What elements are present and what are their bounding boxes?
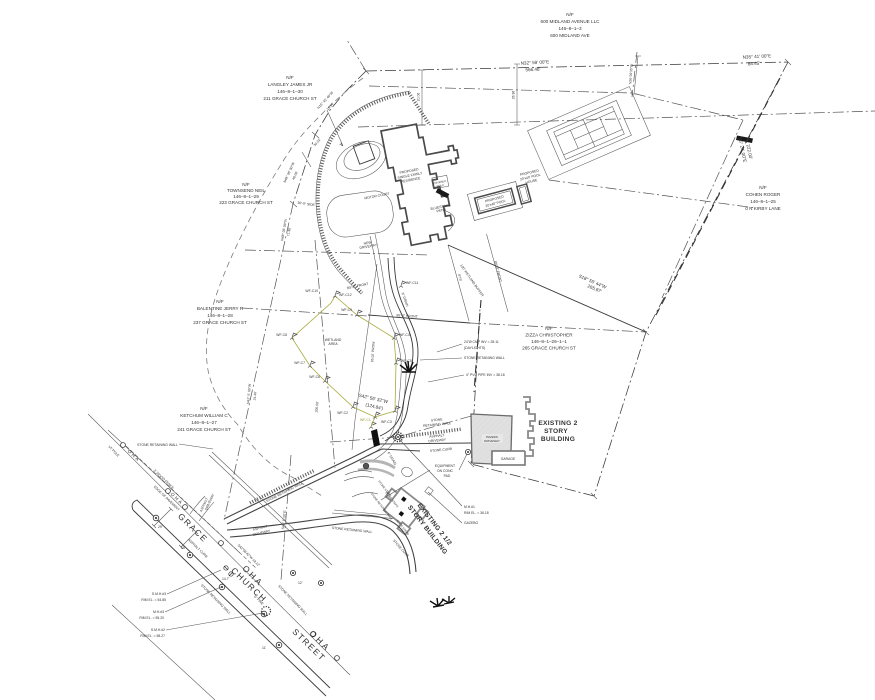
svg-text:24.40': 24.40' [253, 391, 258, 401]
svg-text:WF-C2: WF-C2 [337, 411, 348, 415]
svg-text:ON CONC: ON CONC [437, 469, 454, 473]
svg-text:WF-C3: WF-C3 [381, 420, 392, 424]
svg-text:EXISTING 2: EXISTING 2 [538, 420, 577, 427]
svg-text:DRIVEWAY: DRIVEWAY [359, 243, 378, 250]
svg-text:S42° 56' 32"W: S42° 56' 32"W [358, 393, 389, 405]
svg-text:29': 29' [158, 525, 163, 529]
svg-text:RETAINING WALL: RETAINING WALL [423, 421, 452, 428]
svg-text:241 GRACE CHURCH ST: 241 GRACE CHURCH ST [177, 427, 231, 432]
svg-text:N/F: N/F [286, 75, 294, 80]
svg-text:RIM EL. = 54.85: RIM EL. = 54.85 [141, 598, 166, 602]
svg-text:RIM EL. = 36.18: RIM EL. = 36.18 [464, 511, 489, 515]
svg-text:15': 15' [181, 546, 186, 550]
svg-text:PAD: PAD [444, 474, 451, 478]
svg-text:N35° 41' 00"E: N35° 41' 00"E [743, 53, 772, 59]
svg-text:STONE RETAINING WALL: STONE RETAINING WALL [265, 481, 303, 503]
svg-text:WF-C12: WF-C12 [339, 293, 352, 297]
svg-text:N/F: N/F [545, 326, 553, 331]
svg-text:(124.84'): (124.84') [365, 402, 384, 411]
svg-text:205.50': 205.50' [315, 401, 320, 413]
svg-text:STONE RETAINING WALL: STONE RETAINING WALL [332, 526, 373, 534]
svg-text:237 GRACE CHURCH ST: 237 GRACE CHURCH ST [193, 320, 247, 325]
svg-text:N/F: N/F [216, 299, 224, 304]
svg-text:26.96: 26.96 [512, 91, 516, 100]
svg-text:S.M.H.#2: S.M.H.#2 [151, 628, 165, 632]
svg-text:VT POLE: VT POLE [107, 445, 120, 458]
svg-text:14.7': 14.7' [222, 577, 230, 581]
svg-text:COHEN ROGER: COHEN ROGER [746, 192, 781, 197]
svg-text:M.H.#1: M.H.#1 [464, 505, 475, 509]
svg-text:265 GRACE CHURCH ST: 265 GRACE CHURCH ST [522, 346, 576, 351]
svg-text:LANGLEY JAMES JR: LANGLEY JAMES JR [268, 82, 313, 87]
svg-text:STONE RETAINING WALL: STONE RETAINING WALL [200, 583, 232, 615]
svg-text:STONE RETAINING WALL: STONE RETAINING WALL [464, 356, 505, 360]
svg-text:S.M.H.#3: S.M.H.#3 [152, 592, 166, 596]
svg-text:DRIVEWAY: DRIVEWAY [484, 439, 500, 443]
svg-text:0 N KIRBY LANE: 0 N KIRBY LANE [745, 206, 780, 211]
svg-text:146–8–1–29: 146–8–1–29 [233, 194, 259, 199]
svg-text:N32° 59' 00"E: N32° 59' 00"E [521, 59, 550, 65]
svg-text:WF-C9: WF-C9 [341, 308, 352, 312]
svg-text:WF-C6: WF-C6 [309, 375, 320, 379]
svg-text:RIM EL. = 55.20: RIM EL. = 55.20 [139, 616, 164, 620]
svg-text:12': 12' [298, 581, 303, 585]
svg-text:WF-C8: WF-C8 [276, 333, 287, 337]
svg-text:WF-C4: WF-C4 [399, 333, 410, 337]
svg-text:566.48': 566.48' [525, 67, 540, 73]
svg-text:600 MIDLAND AVE: 600 MIDLAND AVE [550, 33, 590, 38]
svg-text:GRACE: GRACE [176, 511, 210, 544]
svg-text:KETCHUM WILLIAM C: KETCHUM WILLIAM C [180, 413, 228, 418]
svg-text:M.H.#3: M.H.#3 [153, 610, 164, 614]
svg-text:4" PVC PIPE INV = 38.18: 4" PVC PIPE INV = 38.18 [466, 373, 505, 377]
svg-text:DRIVEWAY: DRIVEWAY [428, 437, 447, 443]
svg-text:N26°39'35"W: N26°39'35"W [628, 63, 633, 84]
svg-text:TOWNSEND NEIL: TOWNSEND NEIL [227, 188, 266, 193]
svg-text:71.30': 71.30' [286, 227, 292, 237]
svg-text:STONE RETAINING WALL: STONE RETAINING WALL [277, 584, 308, 616]
svg-text:N/F: N/F [759, 185, 767, 190]
svg-text:STORY: STORY [544, 428, 568, 435]
svg-text:RIM EL. = 58.27: RIM EL. = 58.27 [140, 634, 165, 638]
svg-text:WF-C11: WF-C11 [406, 281, 418, 285]
svg-text:20.06: 20.06 [417, 93, 421, 102]
svg-text:MOTOR COURT: MOTOR COURT [364, 192, 390, 201]
svg-text:B5'-0" FRONT: B5'-0" FRONT [493, 261, 502, 283]
svg-text:(DAYLIGHTS): (DAYLIGHTS) [464, 346, 485, 350]
svg-text:WF-C1: WF-C1 [360, 418, 371, 422]
svg-text:OHA: OHA [127, 449, 142, 464]
svg-text:146–8–1–28: 146–8–1–28 [207, 313, 233, 318]
svg-text:STONE CURB: STONE CURB [430, 447, 453, 453]
svg-text:84.45': 84.45' [748, 61, 761, 67]
svg-text:BUILDING: BUILDING [541, 436, 575, 443]
svg-text:11': 11' [262, 646, 267, 650]
svg-text:46.00': 46.00' [291, 170, 299, 180]
svg-text:WF-C5: WF-C5 [401, 359, 412, 363]
svg-text:N/F: N/F [566, 12, 574, 17]
svg-text:ZIZZA CHRISTOPHER: ZIZZA CHRISTOPHER [525, 333, 573, 338]
svg-text:GARAGE: GARAGE [501, 457, 516, 461]
svg-text:211 GRACE CHURCH ST: 211 GRACE CHURCH ST [263, 96, 316, 101]
svg-text:B5'-0" FRONT: B5'-0" FRONT [347, 282, 369, 290]
svg-text:146–8–1–3: 146–8–1–3 [559, 26, 582, 31]
svg-text:WF-C7: WF-C7 [294, 361, 305, 365]
svg-text:BALENTINE JERRY R: BALENTINE JERRY R [197, 306, 244, 311]
svg-text:223 GRACE CHURCH ST: 223 GRACE CHURCH ST [219, 200, 273, 205]
svg-text:85.02' PROW: 85.02' PROW [370, 341, 375, 363]
svg-text:6" DRAIN: 6" DRAIN [401, 292, 410, 308]
svg-text:N42° 5' 00"W: N42° 5' 00"W [246, 383, 252, 404]
svg-text:146–8–1–27: 146–8–1–27 [191, 420, 217, 425]
svg-text:WF-C10: WF-C10 [305, 289, 318, 293]
svg-text:30'-0" SIDE: 30'-0" SIDE [297, 201, 316, 207]
svg-text:146–8–1–25: 146–8–1–25 [750, 199, 776, 204]
svg-text:N/F: N/F [242, 182, 250, 187]
svg-text:146–8–1–26–1–1: 146–8–1–26–1–1 [531, 339, 567, 344]
svg-text:AREA: AREA [328, 342, 338, 346]
svg-text:GAZEBO: GAZEBO [464, 521, 478, 525]
svg-text:N/F: N/F [200, 406, 208, 411]
svg-text:24"Ø CMP INV = 28.11: 24"Ø CMP INV = 28.11 [464, 340, 499, 344]
svg-text:146–8–1–30: 146–8–1–30 [277, 89, 303, 94]
svg-text:600 MIDLAND AVENUE LLC: 600 MIDLAND AVENUE LLC [541, 19, 601, 24]
svg-text:EQUIPMENT: EQUIPMENT [435, 464, 455, 468]
svg-text:STONE RETAINING WALL: STONE RETAINING WALL [137, 443, 178, 447]
